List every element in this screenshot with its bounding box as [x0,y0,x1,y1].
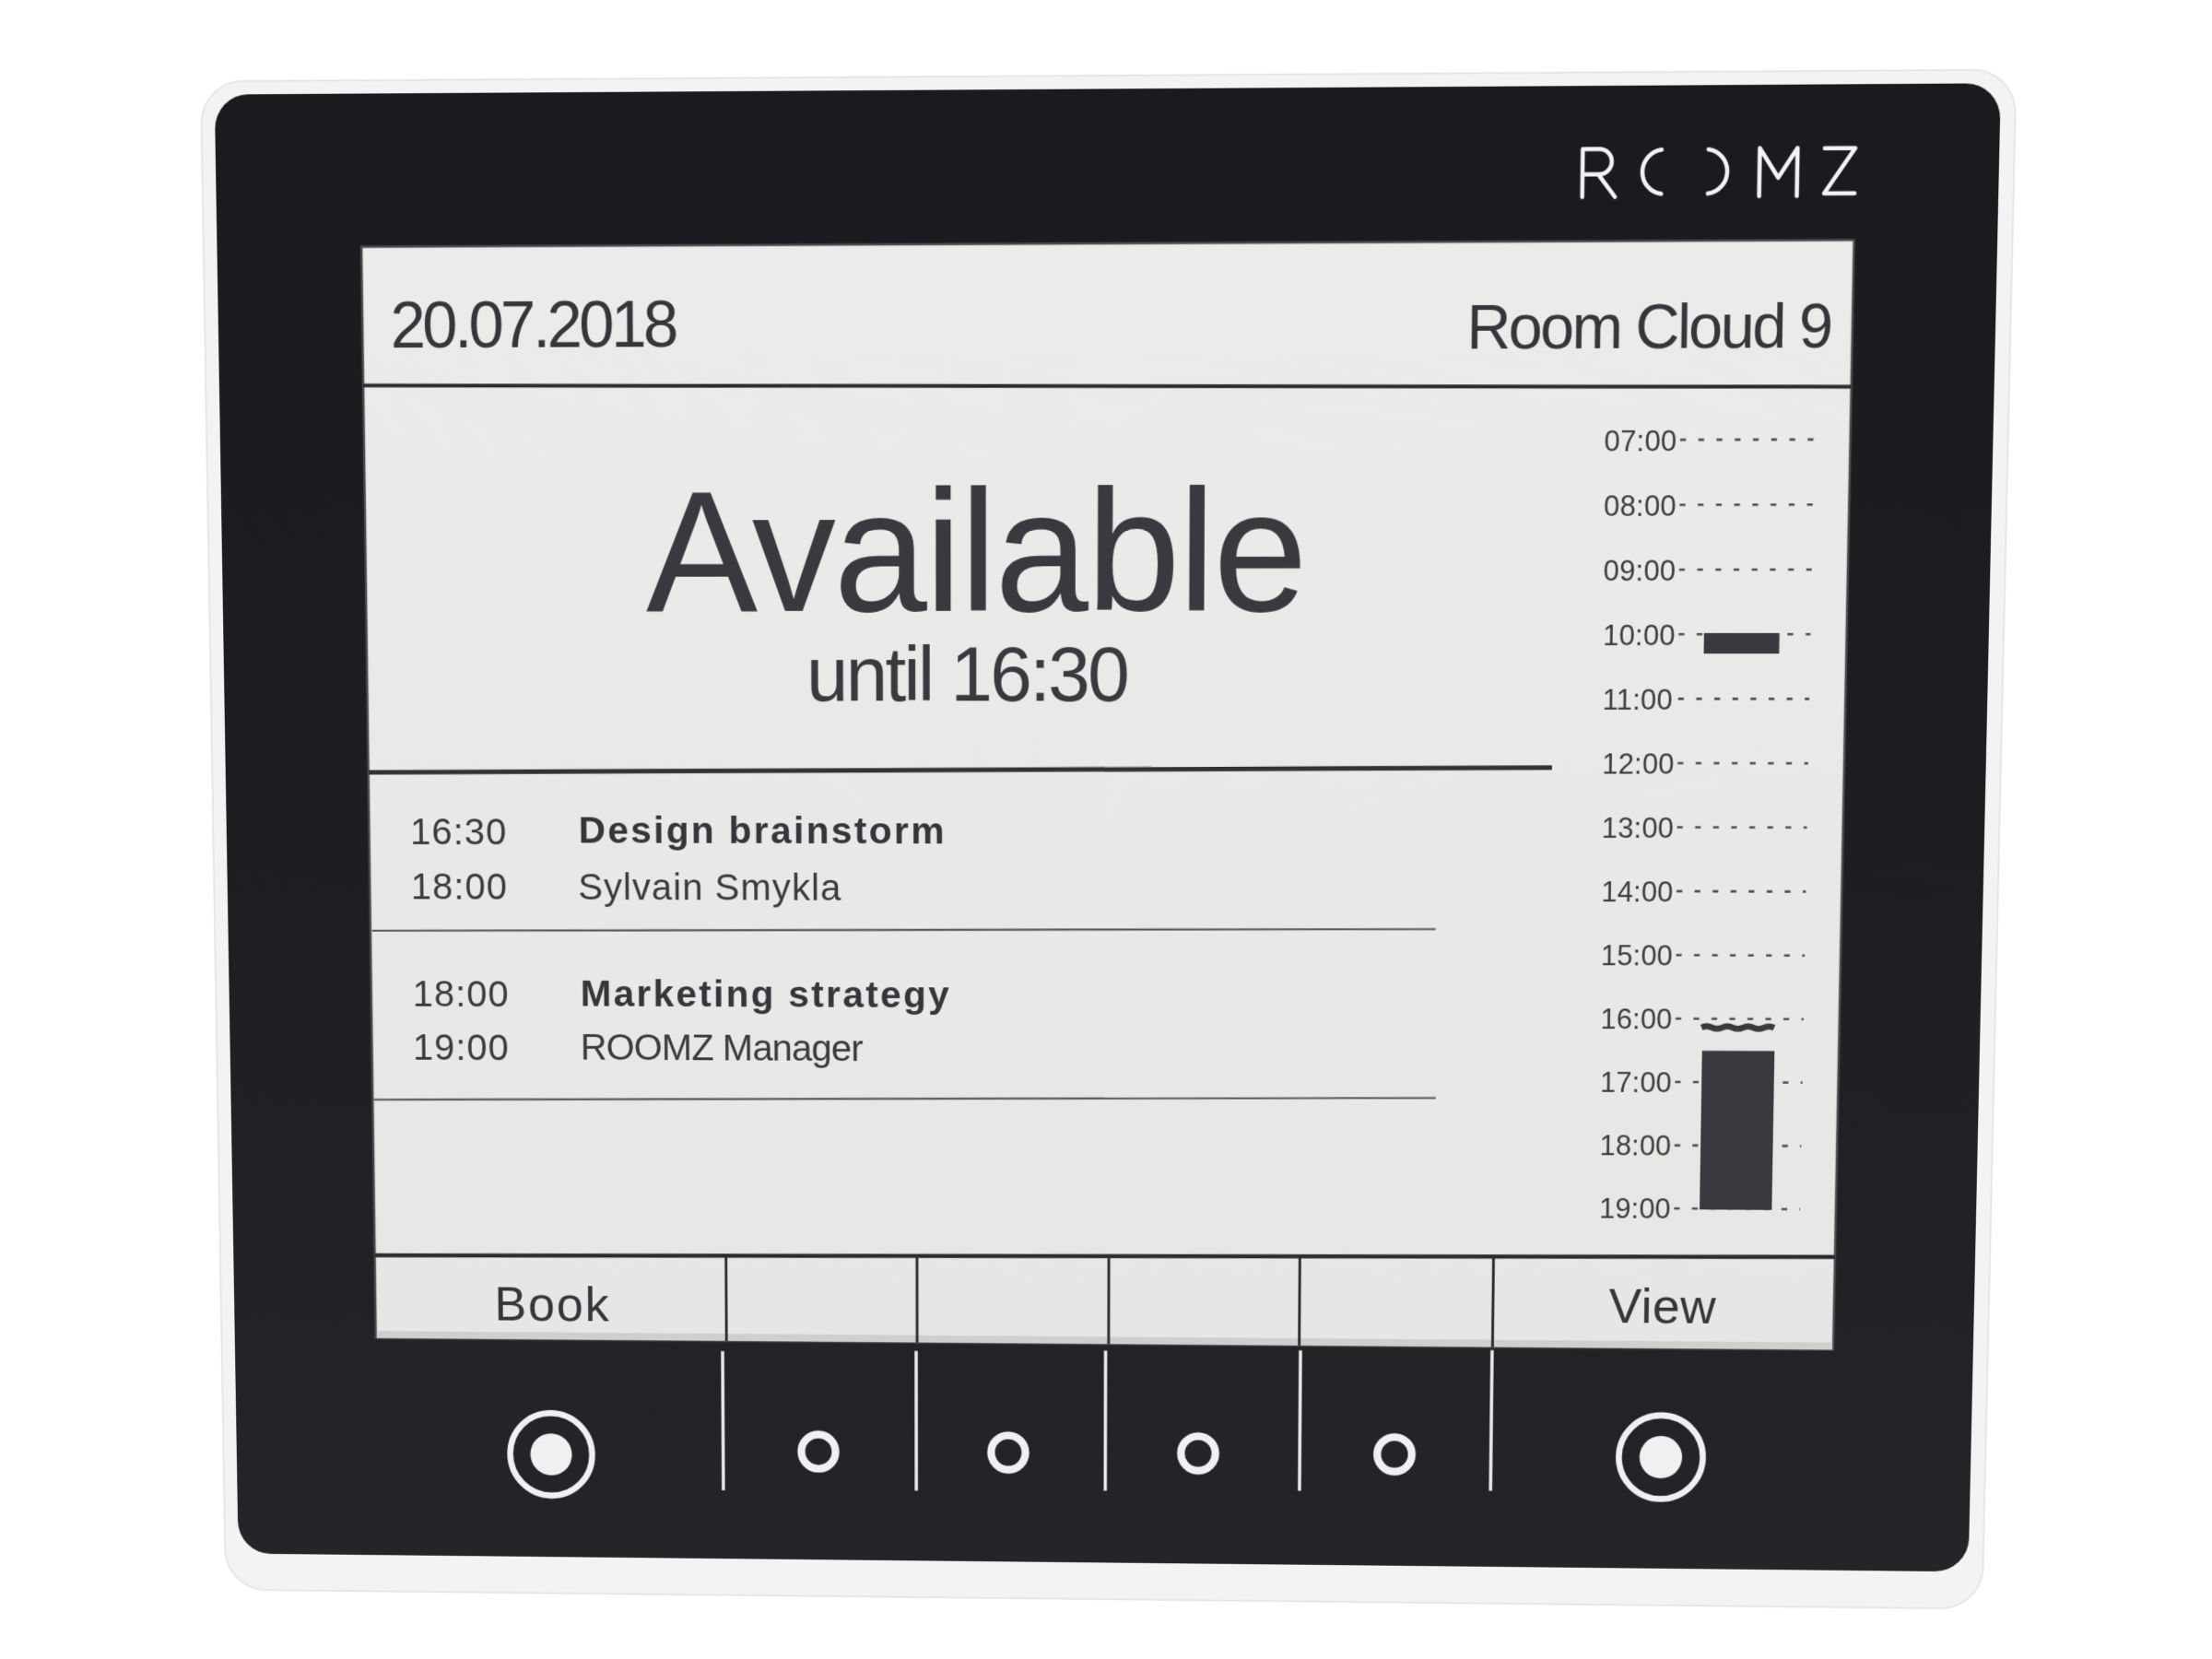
svg-text:Book: Book [494,1277,611,1332]
svg-text:08:00: 08:00 [1604,489,1677,523]
svg-text:12:00: 12:00 [1602,747,1675,780]
svg-text:14:00: 14:00 [1601,876,1674,908]
svg-text:16:00: 16:00 [1600,1003,1672,1035]
svg-text:18:00: 18:00 [411,865,509,908]
svg-text:ROOMZ Manager: ROOMZ Manager [581,1027,863,1070]
svg-text:11:00: 11:00 [1602,684,1673,716]
svg-text:Marketing strategy: Marketing strategy [581,972,952,1017]
svg-text:Design brainstorm: Design brainstorm [579,808,947,853]
svg-text:19:00: 19:00 [1599,1193,1671,1225]
svg-text:until 16:30: until 16:30 [806,631,1128,717]
svg-text:16:30: 16:30 [410,810,508,853]
svg-text:18:00: 18:00 [1599,1130,1671,1162]
svg-text:Room Cloud 9: Room Cloud 9 [1466,291,1831,362]
svg-text:07:00: 07:00 [1604,424,1677,457]
svg-text:Available: Available [645,454,1306,648]
svg-text:18:00: 18:00 [413,973,511,1016]
svg-text:10:00: 10:00 [1603,618,1676,651]
svg-text:19:00: 19:00 [413,1027,510,1069]
svg-text:09:00: 09:00 [1603,554,1676,587]
svg-text:View: View [1608,1279,1717,1335]
svg-text:Sylvain Smykla: Sylvain Smykla [578,865,841,908]
svg-text:20.07.2018: 20.07.2018 [390,288,676,361]
svg-text:17:00: 17:00 [1600,1066,1672,1099]
svg-text:13:00: 13:00 [1602,812,1675,844]
svg-text:15:00: 15:00 [1601,939,1674,971]
